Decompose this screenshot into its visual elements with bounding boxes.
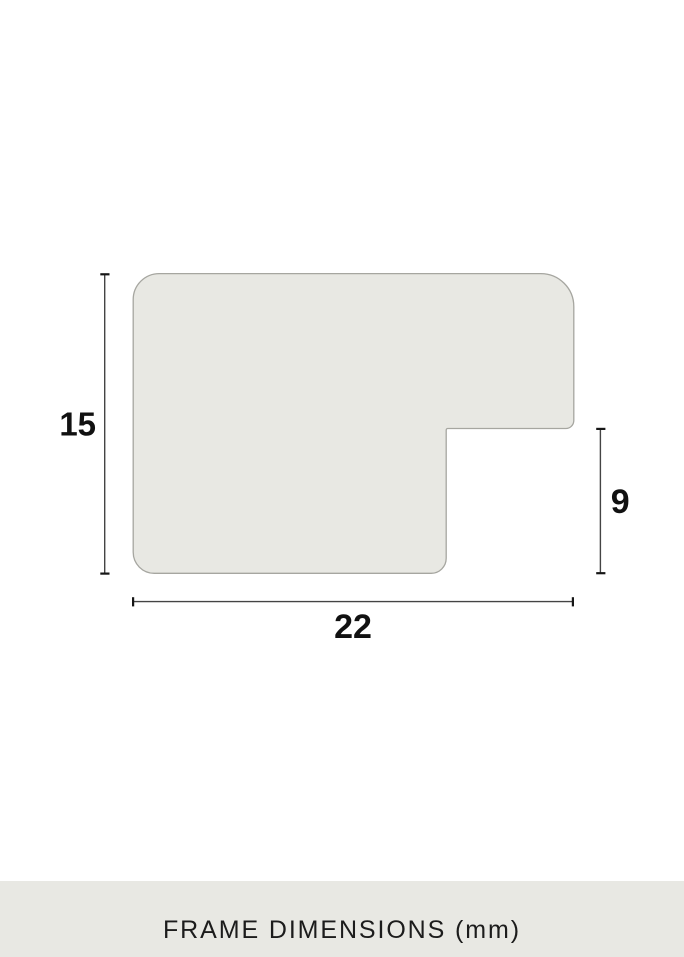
svg-text:15: 15 <box>59 405 96 442</box>
svg-text:22: 22 <box>334 608 372 646</box>
svg-text:9: 9 <box>611 483 630 521</box>
